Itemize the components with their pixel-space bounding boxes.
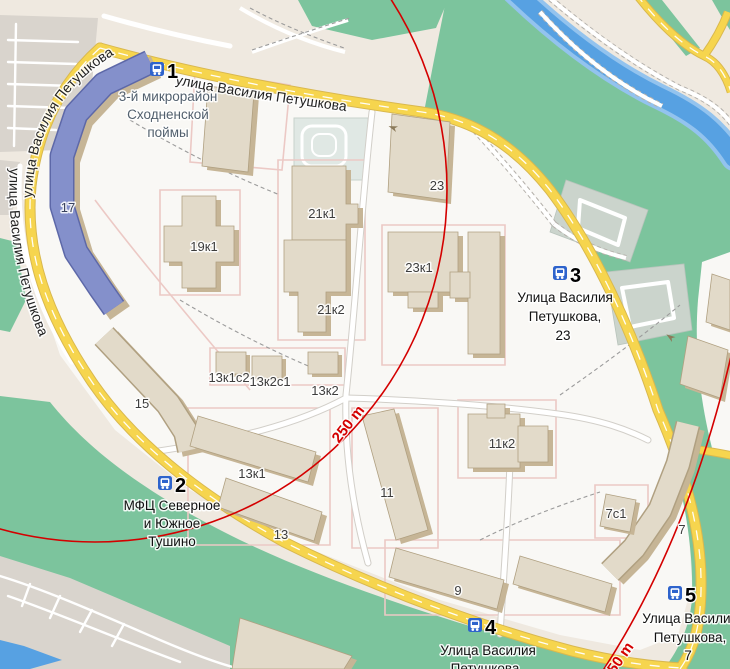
svg-text:7: 7 bbox=[678, 522, 685, 537]
svg-text:и Южное: и Южное bbox=[144, 516, 200, 531]
bus-stop-number: 5 bbox=[685, 585, 696, 607]
svg-text:15: 15 bbox=[135, 396, 149, 411]
svg-text:Улица Василия: Улица Василия bbox=[642, 611, 730, 626]
svg-text:23к1: 23к1 bbox=[405, 260, 432, 275]
svg-text:11к2: 11к2 bbox=[489, 436, 515, 451]
bus-stop-number: 1 bbox=[167, 61, 178, 83]
svg-text:3-й микрорайон: 3-й микрорайон bbox=[119, 89, 218, 104]
svg-text:Петушкова,: Петушкова, bbox=[654, 630, 727, 645]
bus-icon bbox=[668, 586, 682, 600]
svg-text:7с1: 7с1 bbox=[606, 506, 627, 521]
map-canvas[interactable]: улица Василия Петушкова улица Василия Пе… bbox=[0, 0, 730, 669]
svg-text:Тушино: Тушино bbox=[148, 534, 196, 549]
bus-icon bbox=[150, 62, 164, 76]
svg-text:17: 17 bbox=[61, 200, 75, 215]
bus-icon bbox=[468, 618, 482, 632]
svg-text:поймы: поймы bbox=[147, 125, 188, 140]
bus-icon bbox=[553, 266, 567, 280]
svg-text:13к1: 13к1 bbox=[238, 466, 265, 481]
bus-icon bbox=[158, 476, 172, 490]
bus-stop-number: 2 bbox=[175, 475, 186, 497]
svg-text:19к1: 19к1 bbox=[190, 239, 217, 254]
svg-text:21к1: 21к1 bbox=[308, 206, 335, 221]
bus-stop-number: 4 bbox=[485, 617, 497, 639]
bus-stop-number: 3 bbox=[570, 265, 581, 287]
svg-text:Петушкова,: Петушкова, bbox=[529, 309, 602, 324]
svg-text:9: 9 bbox=[454, 583, 461, 598]
svg-text:21к2: 21к2 bbox=[317, 302, 344, 317]
svg-text:23: 23 bbox=[555, 328, 570, 343]
svg-text:Петушкова: Петушкова bbox=[451, 661, 520, 669]
svg-text:13к1с2: 13к1с2 bbox=[208, 370, 249, 385]
map-viewport[interactable]: улица Василия Петушкова улица Василия Пе… bbox=[0, 0, 730, 669]
svg-text:Улица Василия: Улица Василия bbox=[517, 290, 613, 305]
svg-text:Сходненской: Сходненской bbox=[127, 107, 209, 122]
svg-text:13к2с1: 13к2с1 bbox=[249, 374, 290, 389]
svg-text:7: 7 bbox=[684, 648, 692, 663]
svg-text:МФЦ Северное: МФЦ Северное bbox=[124, 498, 221, 513]
svg-text:13: 13 bbox=[274, 527, 288, 542]
svg-text:13к2: 13к2 bbox=[311, 383, 338, 398]
svg-text:Улица Василия: Улица Василия bbox=[440, 643, 536, 658]
building-13k2[interactable] bbox=[308, 352, 342, 377]
svg-text:23: 23 bbox=[430, 178, 444, 193]
svg-text:11: 11 bbox=[380, 485, 394, 500]
